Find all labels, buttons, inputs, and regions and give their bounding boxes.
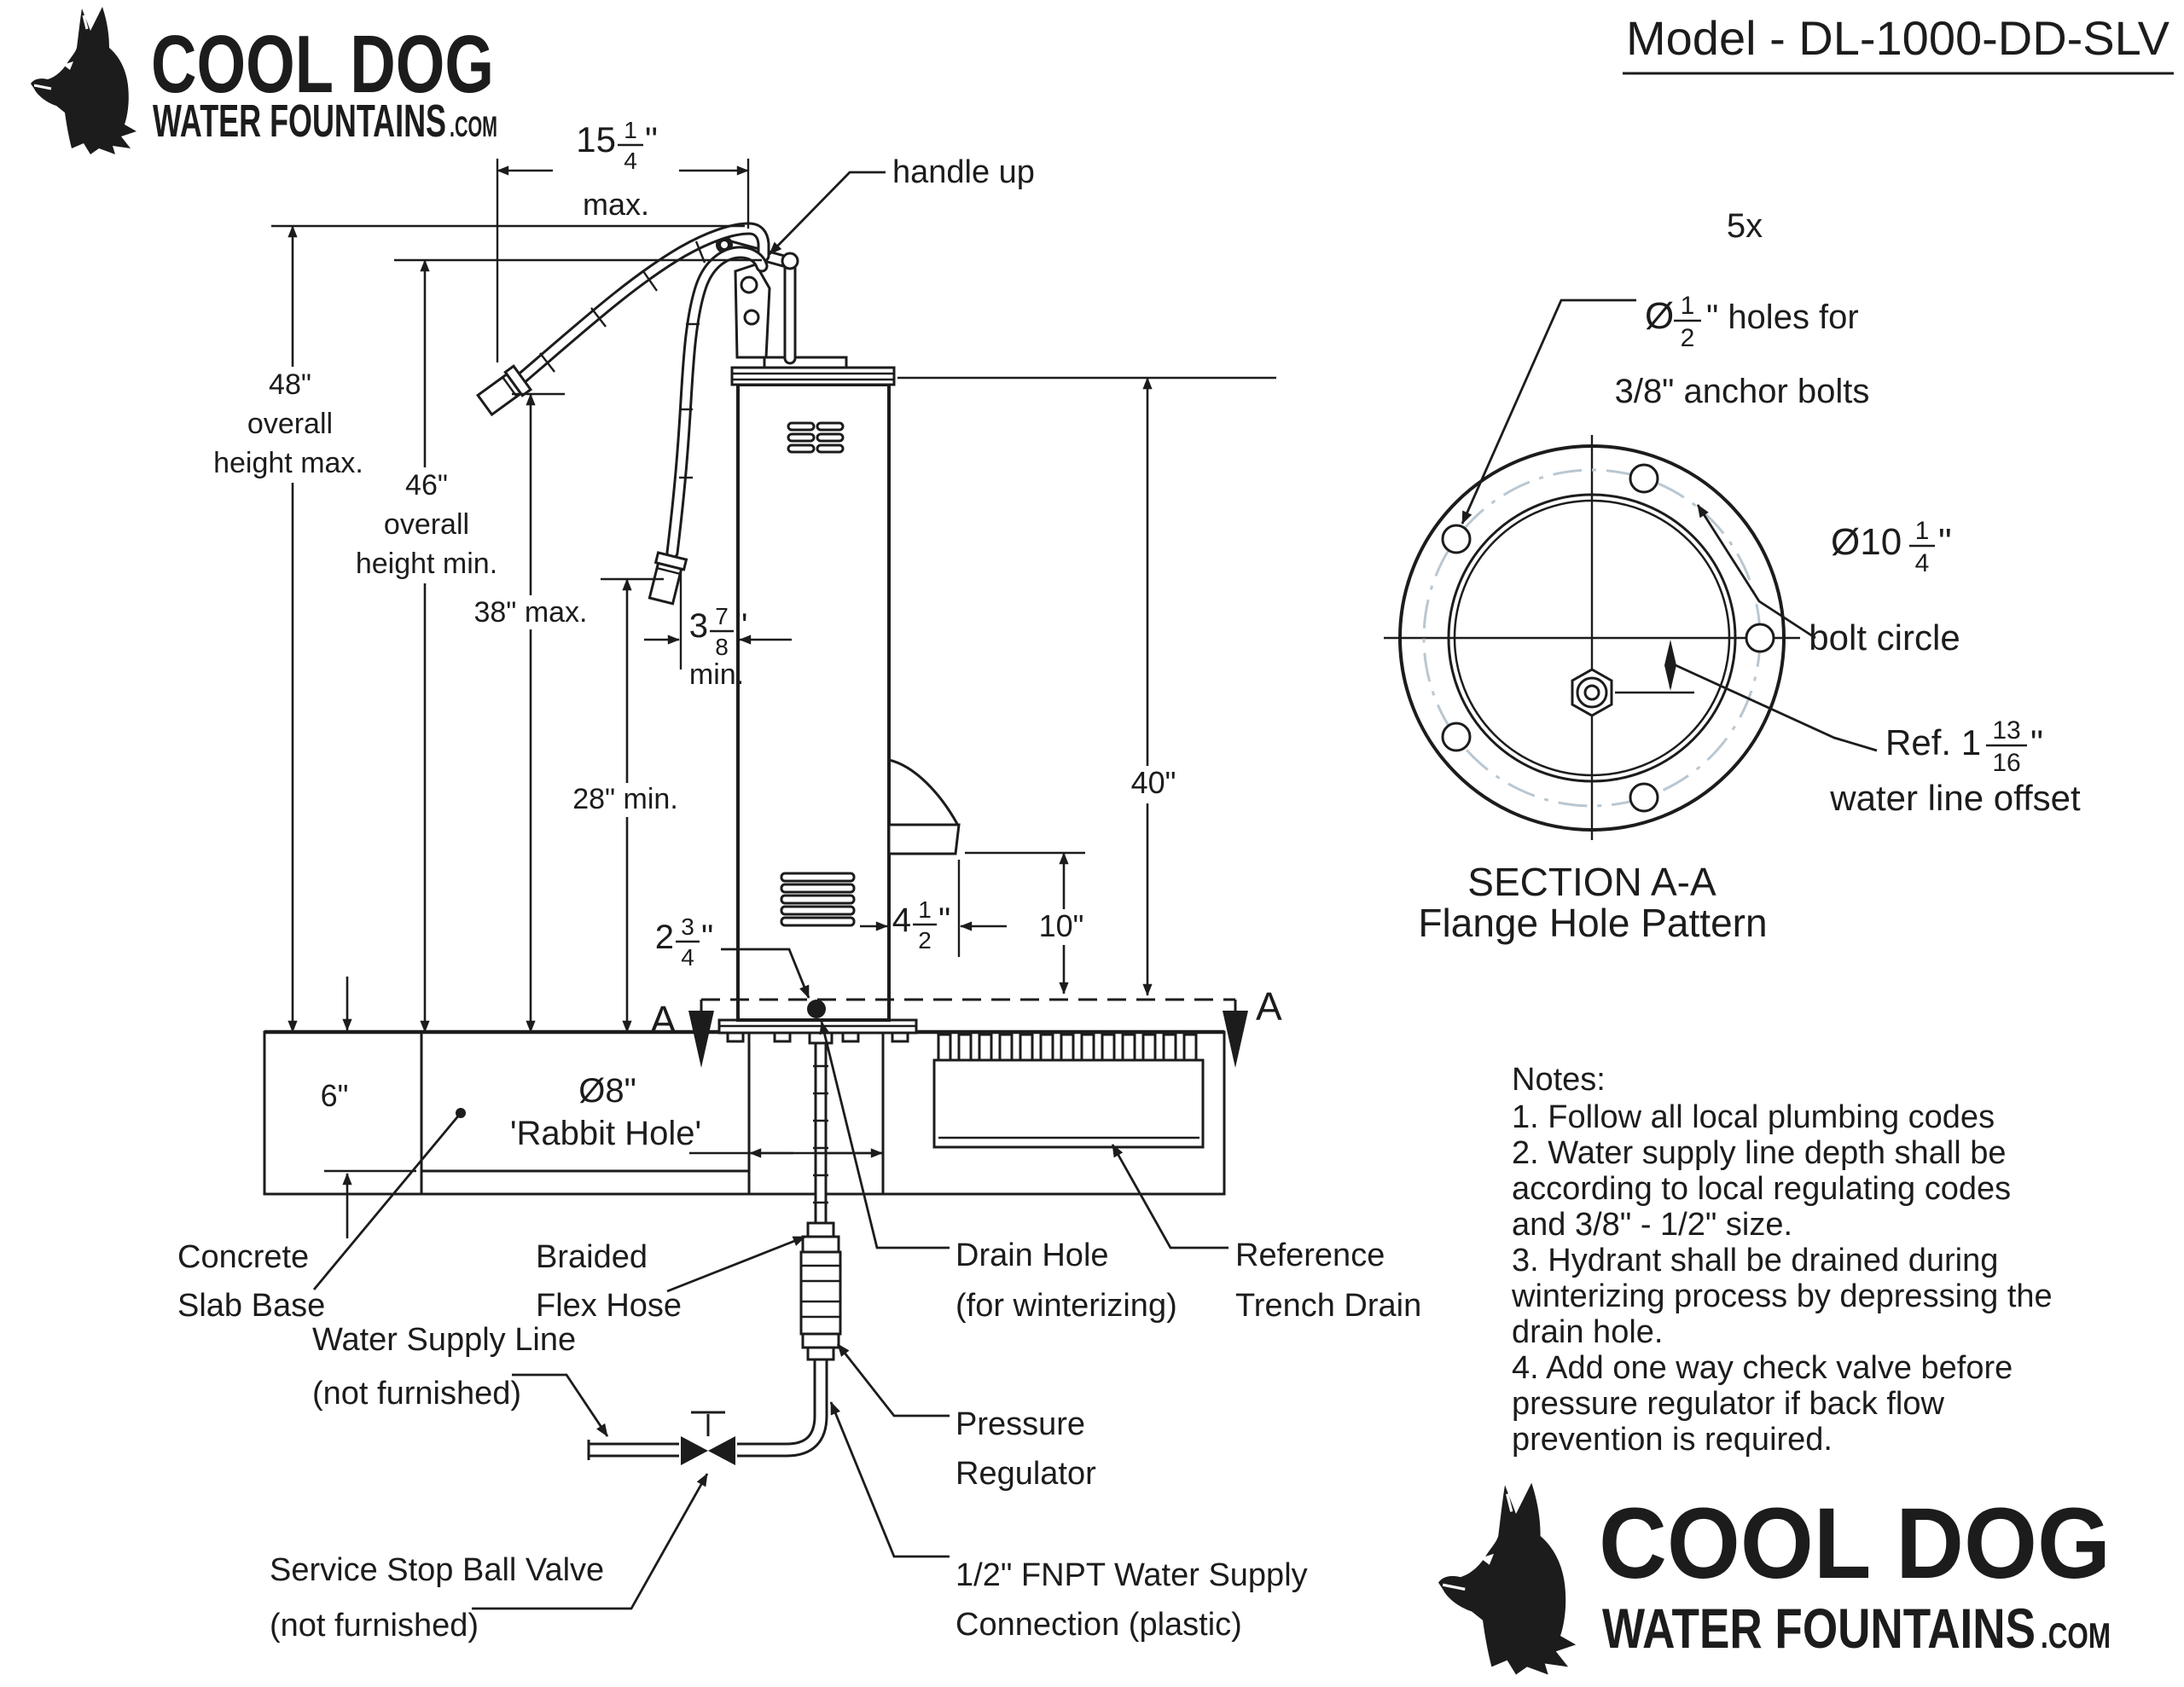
offset-prefix: Ref. 1 [1885,722,1981,762]
dim-top-width-den: 4 [624,148,637,174]
spec-sheet-page: COOL DOG WATER FOUNTAINS .COM Model - DL… [0,0,2184,1687]
dog-icon-bottom [1438,1483,1576,1675]
label-regulator-1: Pressure [955,1406,1085,1442]
water-line-fitting [1572,670,1694,716]
dim-spout-unit: " [938,901,950,939]
dim-38: 38" max. [473,596,587,629]
notes-line-7: drain hole. [1512,1314,1663,1350]
hydrant-cap [732,357,894,385]
dim-spout-offset: 4 1 2 " [892,896,950,954]
section-title: SECTION A-A [1467,860,1716,904]
bolt-circle-den: 4 [1915,549,1930,577]
braided-flex-hose [813,1039,828,1226]
dim-rabbit-dia: Ø8" [578,1072,636,1110]
bolt-circle-l2: bolt circle [1809,617,1960,658]
notes-line-10: prevention is required. [1512,1422,1833,1458]
notes-line-3: according to local regulating codes [1512,1171,2011,1207]
offset-suffix: " [2030,722,2043,762]
label-handle-up: handle up [892,154,1035,190]
dim-46-value: 46" [405,469,448,501]
label-supply-2: (not furnished) [312,1376,521,1412]
dim-48-l2: overall [247,408,333,440]
dim-drain-unit: " [701,919,713,956]
dim-top-width: 15 1 4 " max. [576,117,658,222]
label-concrete-1: Concrete [177,1239,309,1275]
dim-spout-whole: 4 [892,901,911,939]
dim-top-width-whole: 15 [576,119,616,159]
technical-drawing: COOL DOG WATER FOUNTAINS .COM Model - DL… [0,0,2184,1687]
label-trench-1: Reference [1235,1238,1385,1273]
logo-subtitle: WATER FOUNTAINS [153,96,446,147]
dim-46-l2: overall [384,508,469,541]
dim-gap-num: 7 [715,603,729,629]
label-regulator-2: Regulator [955,1456,1096,1492]
dim-28: 28" min. [572,783,678,815]
notes-line-2: 2. Water supply line depth shall be [1512,1135,2006,1171]
logo-bottom-subtitle: WATER FOUNTAINS [1602,1597,2036,1660]
logo-suffix: .COM [450,111,497,143]
pressure-regulator [801,1223,840,1359]
bolt-circle-suffix: " [1938,521,1952,563]
flange-hole-den: 2 [1681,324,1695,352]
label-valve-1: Service Stop Ball Valve [270,1552,604,1588]
label-trench-2: Trench Drain [1235,1288,1421,1324]
dim-48-value: 48" [269,368,311,401]
section-marker-a-right: A [1256,984,1282,1029]
model-title: Model - DL-1000-DD-SLV [1623,11,2174,73]
label-concrete-2: Slab Base [177,1288,325,1324]
notes-line-8: 4. Add one way check valve before [1512,1350,2013,1386]
label-valve-2: (not furnished) [270,1608,479,1644]
logo-bottom: COOL DOG WATER FOUNTAINS .COM [1438,1483,2111,1675]
flange-count: 5x [1727,207,1763,245]
dim-40: 40" [1131,765,1176,800]
section-subtitle: Flange Hole Pattern [1418,901,1767,945]
notes-line-9: pressure regulator if back flow [1512,1386,1944,1422]
section-marker-a-left: A [650,998,677,1042]
hoses [476,229,764,605]
label-fnpt-1: 1/2" FNPT Water Supply [955,1557,1308,1593]
flange-hole-num: 1 [1681,292,1695,320]
offset-den: 16 [1992,749,2020,777]
dimension-text: 15 1 4 " max. 48" overall height max. 46… [213,117,1176,1152]
dim-top-width-num: 1 [624,117,637,143]
lower-vent-grille [781,873,854,925]
notes-line-6: winterizing process by depressing the [1511,1278,2053,1314]
flange-holes-label: Ø 1 2 " holes for 3/8" anchor bolts [1615,292,1870,410]
dim-gap-unit: " [735,607,747,645]
dim-gap-qual: min. [689,658,744,691]
label-drain-1: Drain Hole [955,1238,1109,1273]
dim-6: 6" [321,1078,349,1113]
logo-bottom-suffix: .COM [2041,1615,2111,1655]
dim-drain-den: 4 [681,944,694,971]
logo-top: COOL DOG WATER FOUNTAINS .COM [31,7,497,154]
dim-gap-whole: 3 [689,607,708,645]
logo-bottom-title: COOL DOG [1599,1487,2111,1600]
dim-46-l3: height min. [356,548,497,580]
label-drain-2: (for winterizing) [955,1288,1177,1324]
dim-drain-whole: 2 [655,919,674,956]
dim-top-width-unit: " [645,119,658,159]
notes-line-5: 3. Hydrant shall be drained during [1512,1243,1998,1278]
flange-hole-l2: 3/8" anchor bolts [1615,373,1870,410]
dim-drain-num: 3 [681,913,694,940]
flange-hole-suffix: " holes for [1706,299,1859,336]
notes-block: Notes: 1. Follow all local plumbing code… [1511,1062,2053,1458]
flange-hole-prefix: Ø [1645,295,1674,337]
bolt-circle-num: 1 [1915,517,1930,545]
dim-10: 10" [1039,908,1084,943]
bolt-circle-prefix: Ø10 [1831,521,1902,563]
notes-heading: Notes: [1512,1062,1606,1098]
dim-spout-num: 1 [918,896,932,923]
model-label: Model - DL-1000-DD-SLV [1626,11,2170,65]
drain-hole [807,1000,826,1018]
dim-spout-den: 2 [918,927,932,954]
label-supply-1: Water Supply Line [312,1322,576,1358]
label-fnpt-2: Connection (plastic) [955,1607,1242,1643]
dog-icon [31,7,136,154]
dim-rabbit-name: 'Rabbit Hole' [510,1115,701,1152]
dog-bowl-spout [889,760,959,854]
dim-48-l3: height max. [213,447,363,479]
label-braided-1: Braided [536,1239,648,1275]
offset-l2: water line offset [1829,778,2081,818]
notes-line-1: 1. Follow all local plumbing codes [1512,1099,1995,1135]
bolt-circle-label: Ø10 1 4 " bolt circle [1809,517,1960,658]
label-braided-2: Flex Hose [536,1288,682,1324]
flange-hole-pattern: 5x Ø 1 2 " holes for 3/8" anchor bolts Ø… [1384,207,2081,945]
waterline-offset-label: Ref. 1 13 16 " water line offset [1829,716,2081,818]
ball-valve [679,1412,737,1465]
offset-num: 13 [1992,716,2020,745]
notes-line-4: and 3/8" - 1/2" size. [1512,1207,1792,1243]
offset-arrow [1664,640,1676,691]
dim-drain-offset: 2 3 4 " [655,913,713,971]
dim-gap-den: 8 [715,634,729,660]
dim-top-width-qual: max. [583,187,649,222]
